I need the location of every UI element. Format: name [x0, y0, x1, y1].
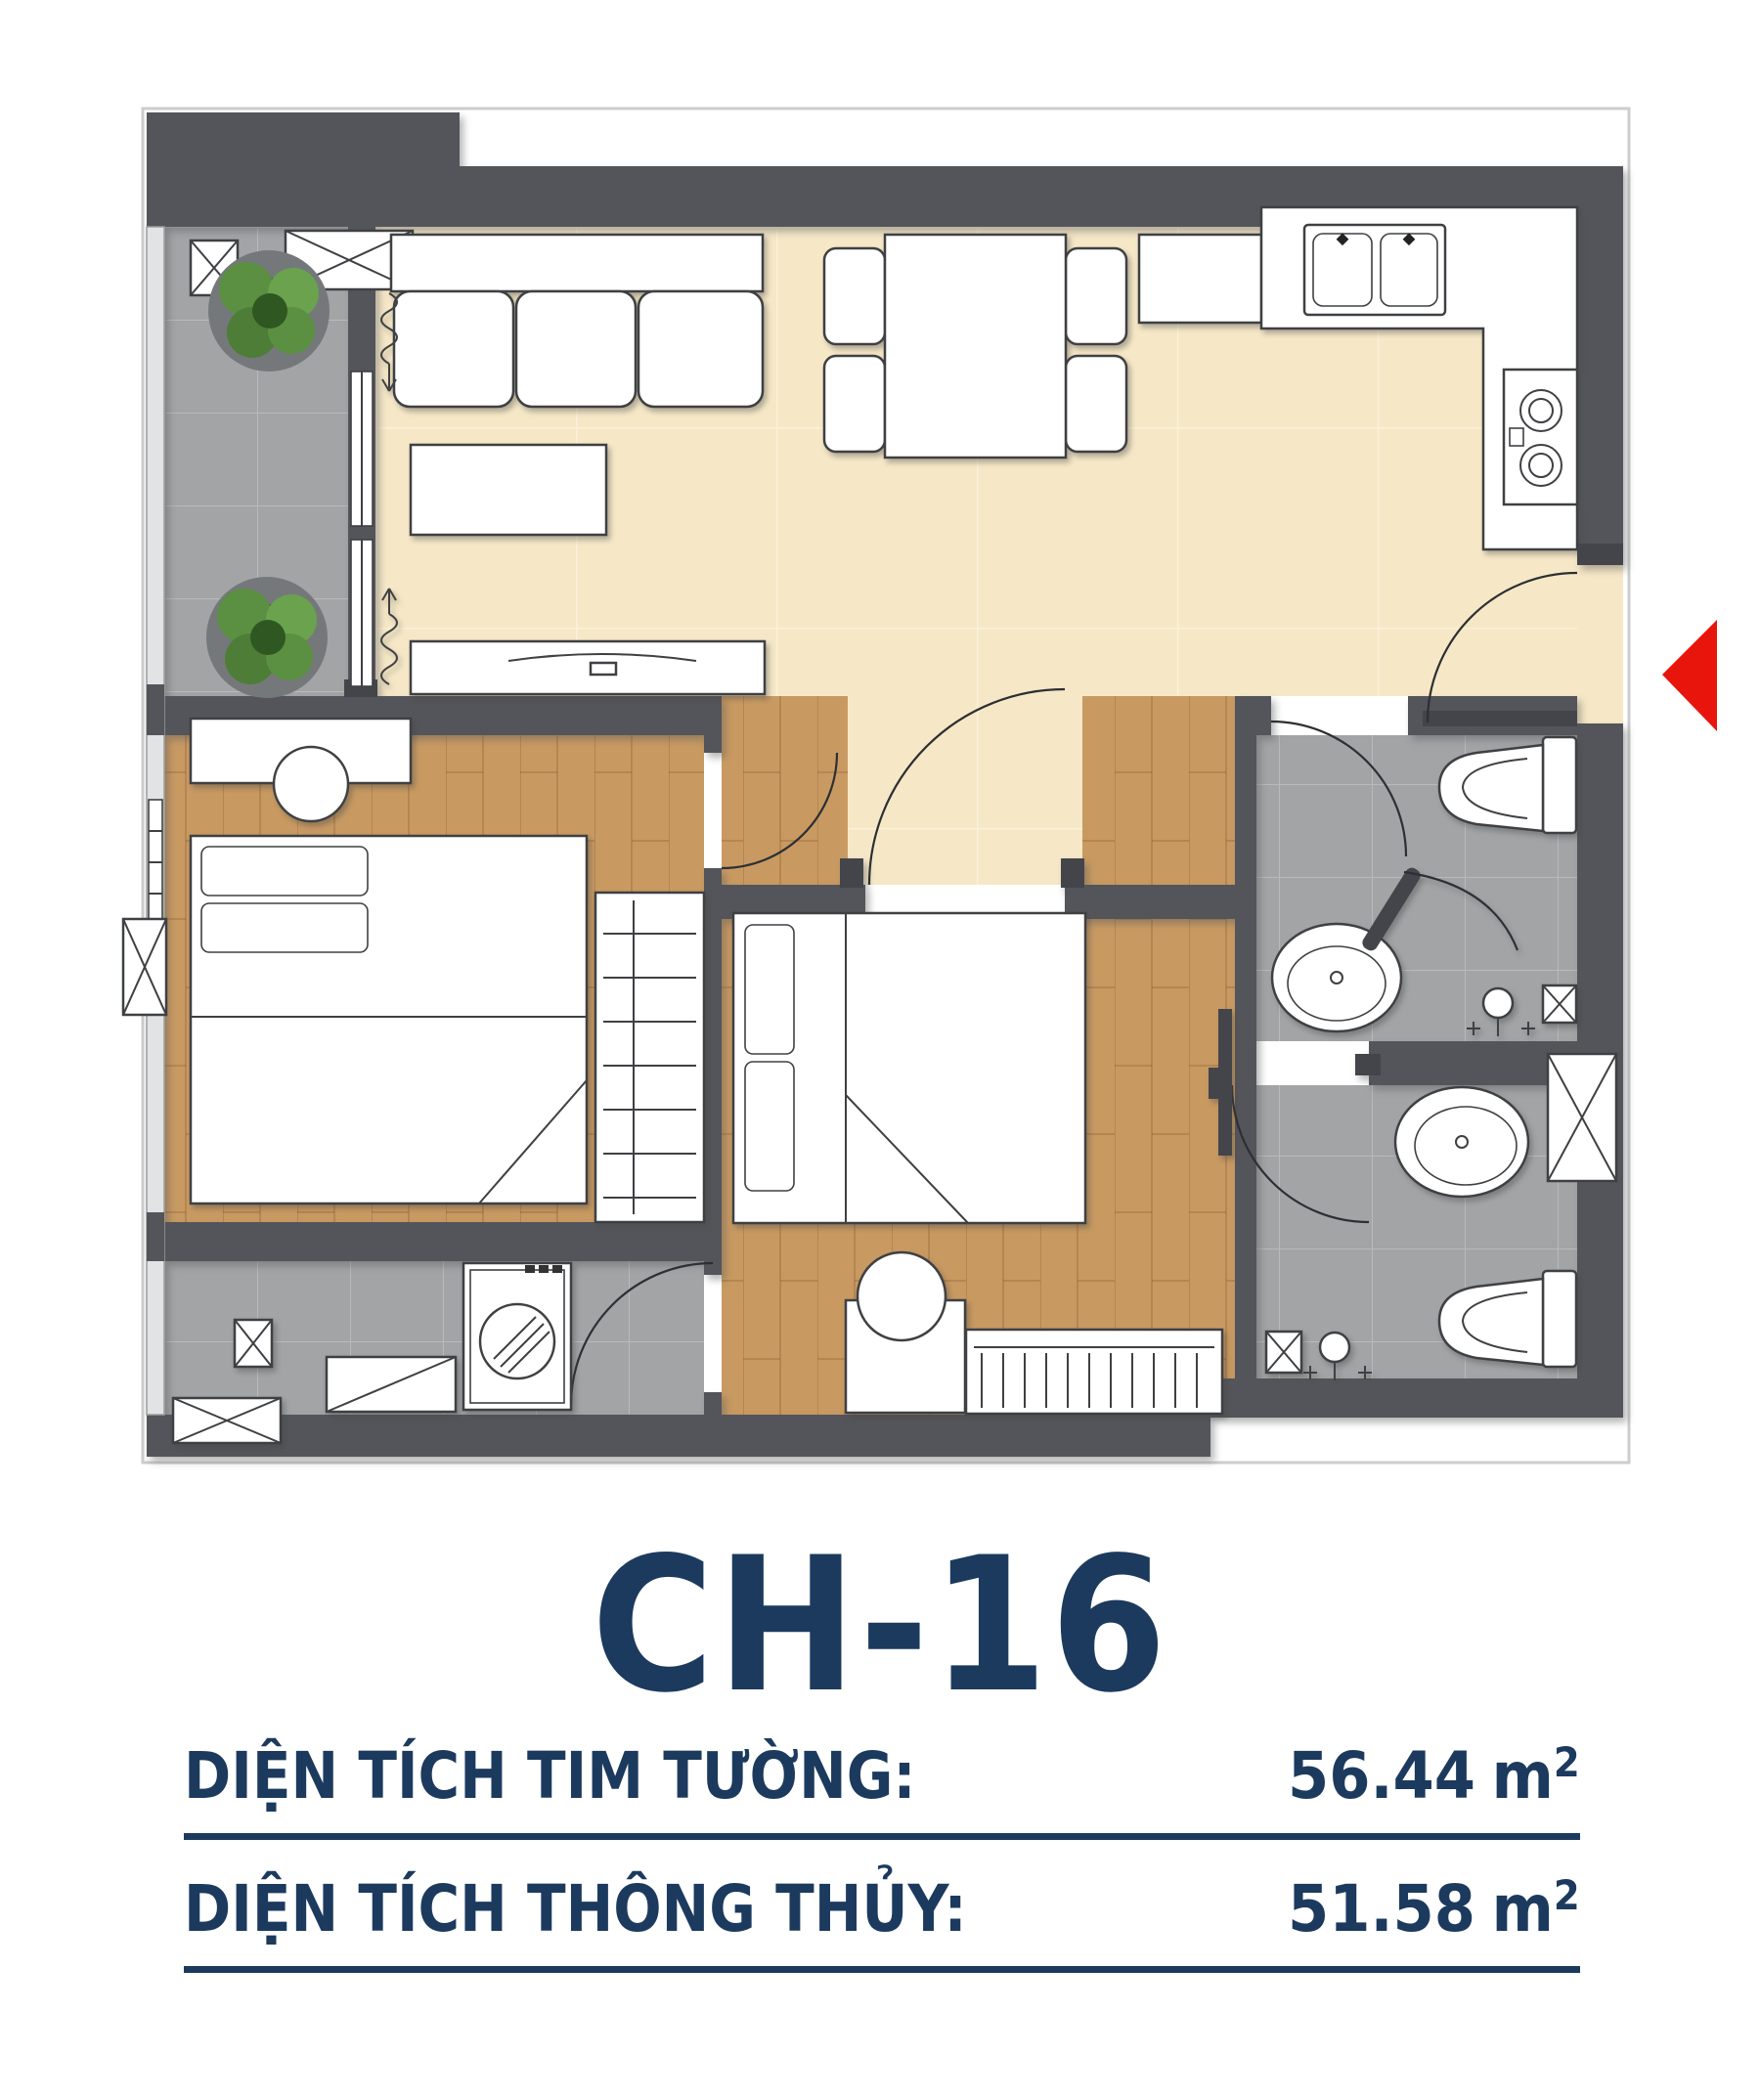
- wall-bedroom1-bottom: [147, 1222, 704, 1261]
- pillow: [745, 925, 794, 1054]
- wall-divider-stub: [1235, 1041, 1256, 1085]
- unit-code-text: CH-16: [591, 1533, 1168, 1719]
- wall-bedroom2-bottom: [722, 1415, 1210, 1457]
- wall-left-post-b: [147, 1212, 164, 1261]
- stove-knob: [1510, 428, 1523, 446]
- fridge: [1139, 235, 1261, 323]
- tv-stand: [591, 663, 616, 675]
- unit-code-title: CH-16: [0, 1533, 1760, 1719]
- wall-laundry-right-b: [704, 1392, 722, 1415]
- bedroom2-tv-stand: [1209, 1068, 1218, 1099]
- pillow: [745, 1062, 794, 1191]
- pillow: [201, 847, 368, 896]
- tv-console: [411, 641, 765, 694]
- pillow: [201, 903, 368, 952]
- wall-bathroom2-bottom: [1193, 1378, 1623, 1418]
- bedroom2-tv: [1218, 1009, 1232, 1156]
- entrance-threshold-floor: [1577, 562, 1623, 723]
- sofa-back: [391, 235, 763, 291]
- apartment-floor-plan: [0, 0, 1760, 1525]
- bedroom1-stool: [274, 747, 348, 821]
- wall-right-upper: [1577, 227, 1623, 562]
- wall-left-post-a: [147, 684, 164, 735]
- sofa-cushion: [638, 291, 763, 407]
- dining-chair: [824, 356, 885, 452]
- entrance-arrow-icon: [1662, 620, 1717, 731]
- floor-plan-page: CH-16 DIỆN TÍCH TIM TƯỜNG: 56.44m2 DIỆN …: [0, 0, 1760, 2100]
- wall-top-left-block: [147, 112, 460, 227]
- dining-chair: [1066, 248, 1126, 344]
- dining-table: [885, 235, 1066, 458]
- dining-chair: [824, 248, 885, 344]
- service-shaft: [1548, 1054, 1616, 1181]
- door-post-foyer-left: [840, 858, 863, 888]
- wall-bathrooms-divider: [1369, 1041, 1577, 1085]
- sofa-cushion: [516, 291, 636, 407]
- washer-drum: [480, 1304, 554, 1378]
- washer-control: [552, 1265, 562, 1273]
- wall-bedroom2-top-b: [1065, 885, 1235, 919]
- door-post-foyer-right: [1061, 858, 1084, 888]
- washer-control: [539, 1265, 549, 1273]
- sink: [1272, 924, 1401, 1031]
- wall-bathroom1-top-a: [1256, 696, 1271, 735]
- plant-1: [208, 250, 330, 372]
- sofa-cushion: [394, 291, 513, 407]
- sink: [1395, 1087, 1528, 1197]
- area-row-gross: DIỆN TÍCH TIM TƯỜNG: 56.44m2: [184, 1738, 1580, 1840]
- dining-chair: [1066, 356, 1126, 452]
- area-label: DIỆN TÍCH THÔNG THỦY:: [184, 1871, 967, 1947]
- area-row-net: DIỆN TÍCH THÔNG THỦY: 51.58m2: [184, 1871, 1580, 1973]
- area-info: DIỆN TÍCH TIM TƯỜNG: 56.44m2 DIỆN TÍCH T…: [184, 1738, 1580, 2004]
- entry-door-leaf: [1423, 711, 1577, 726]
- door-post-bathroom2: [1355, 1054, 1381, 1075]
- washer-control: [525, 1265, 535, 1273]
- area-value: 56.44m2: [1288, 1738, 1580, 1814]
- wall-bedroom1-right-b: [704, 868, 722, 1261]
- bedroom1-wardrobe: [595, 893, 704, 1222]
- coffee-table: [411, 445, 606, 535]
- area-label: DIỆN TÍCH TIM TƯỜNG:: [184, 1738, 916, 1814]
- area-value: 51.58m2: [1288, 1871, 1580, 1947]
- door-post-entry: [1577, 544, 1623, 565]
- bedroom2-wardrobe: [966, 1330, 1222, 1414]
- wall-bedroom1-right-a: [704, 696, 722, 753]
- plant-2: [206, 577, 328, 698]
- bedroom2-stool: [858, 1252, 946, 1340]
